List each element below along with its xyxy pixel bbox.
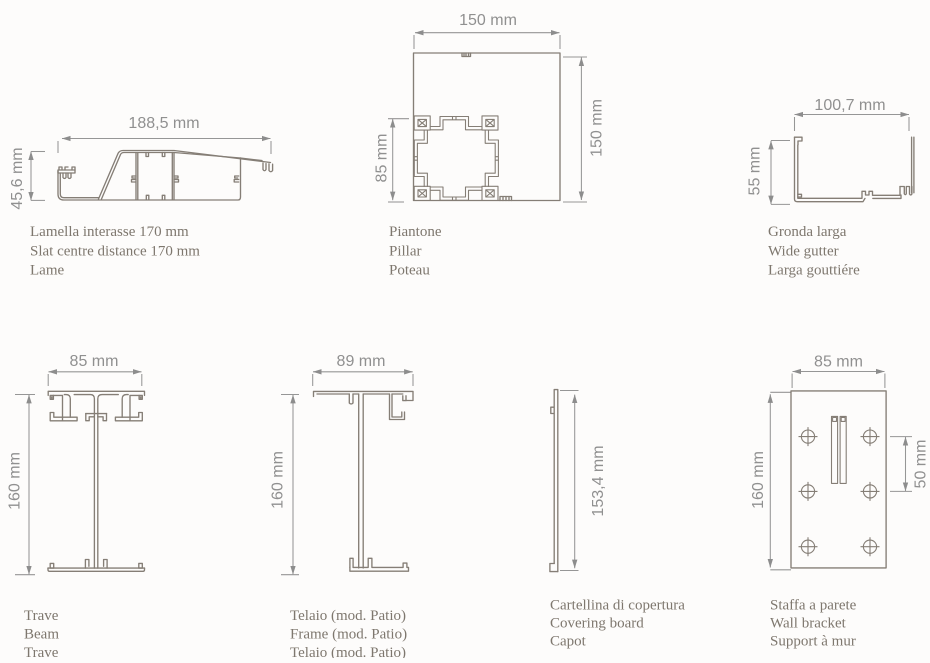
svg-text:Slat centre distance 170 mm: Slat centre distance 170 mm	[30, 244, 200, 260]
svg-text:150 mm: 150 mm	[459, 12, 517, 29]
svg-text:Capot: Capot	[550, 634, 587, 650]
svg-text:45,6 mm: 45,6 mm	[9, 147, 26, 209]
svg-text:Piantone: Piantone	[389, 224, 442, 240]
svg-text:85 mm: 85 mm	[374, 134, 391, 183]
svg-text:160 mm: 160 mm	[750, 451, 767, 509]
svg-text:160 mm: 160 mm	[7, 452, 24, 510]
svg-text:Staffa a parete: Staffa a parete	[770, 598, 857, 614]
svg-text:Covering board: Covering board	[550, 616, 644, 632]
svg-text:Telaio (mod. Patio): Telaio (mod. Patio)	[290, 608, 406, 624]
svg-text:Trave: Trave	[24, 608, 59, 624]
svg-text:55 mm: 55 mm	[747, 147, 764, 196]
svg-text:Beam: Beam	[24, 627, 59, 643]
svg-text:150 mm: 150 mm	[589, 99, 606, 157]
svg-text:160 mm: 160 mm	[270, 451, 287, 509]
svg-text:Gronda larga: Gronda larga	[768, 224, 847, 240]
svg-text:Lame: Lame	[30, 263, 64, 279]
svg-text:188,5 mm: 188,5 mm	[128, 115, 199, 132]
svg-text:Lamella interasse 170 mm: Lamella interasse 170 mm	[30, 224, 189, 240]
svg-text:100,7 mm: 100,7 mm	[814, 97, 885, 114]
svg-text:Telaio (mod. Patio): Telaio (mod. Patio)	[290, 645, 406, 658]
svg-text:Larga gouttiére: Larga gouttiére	[768, 263, 860, 279]
svg-text:Support à mur: Support à mur	[770, 634, 856, 650]
svg-text:Frame (mod. Patio): Frame (mod. Patio)	[290, 627, 407, 643]
svg-text:85 mm: 85 mm	[70, 353, 119, 370]
svg-text:Cartellina di copertura: Cartellina di copertura	[550, 598, 685, 614]
svg-text:Trave: Trave	[24, 645, 59, 658]
svg-text:85 mm: 85 mm	[814, 354, 863, 371]
svg-text:50 mm: 50 mm	[913, 440, 930, 489]
svg-text:Poteau: Poteau	[389, 263, 430, 279]
svg-text:153,4 mm: 153,4 mm	[590, 445, 607, 516]
svg-text:Pillar: Pillar	[389, 244, 422, 260]
svg-text:Wide gutter: Wide gutter	[768, 244, 839, 260]
svg-text:89 mm: 89 mm	[337, 353, 386, 370]
svg-text:Wall bracket: Wall bracket	[770, 616, 847, 632]
